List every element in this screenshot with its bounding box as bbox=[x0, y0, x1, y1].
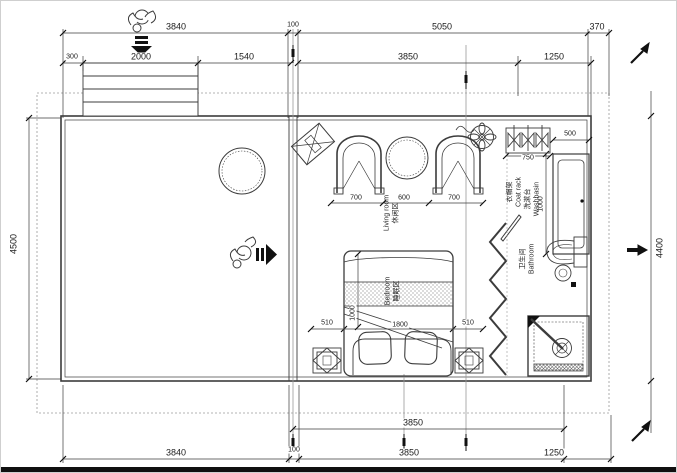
person-side-icon bbox=[230, 237, 255, 268]
dim-top2-1250: 1250 bbox=[543, 53, 565, 62]
dim-left-4500: 4500 bbox=[10, 233, 19, 255]
dim-top2-300: 300 bbox=[65, 54, 79, 61]
dim-washbasin-500: 500 bbox=[563, 131, 577, 138]
pillow-left bbox=[358, 331, 391, 364]
grid-lines bbox=[292, 29, 468, 451]
pen-marker-top-icon bbox=[631, 43, 649, 63]
bedroom-label: Bedroom 睡眠区 bbox=[385, 277, 402, 305]
washbasin-label: 洗漱台 Washbasin bbox=[525, 182, 542, 216]
dim-bottom2-1250: 1250 bbox=[543, 449, 565, 458]
dim-chair-700-left: 700 bbox=[349, 195, 363, 202]
privacy-screen bbox=[490, 223, 506, 375]
dim-top-370: 370 bbox=[588, 23, 605, 32]
coat-rack-label: 衣帽架 Coat rack bbox=[507, 177, 524, 207]
bathroom-label: 卫生间 Bathroom bbox=[520, 244, 537, 274]
bedroom-label-en: Bedroom bbox=[385, 277, 394, 305]
dim-top2-1540: 1540 bbox=[233, 53, 255, 62]
dim-bottom2-3840: 3840 bbox=[165, 449, 187, 458]
living-room-label-en: Living room bbox=[384, 195, 393, 231]
bedroom-label-zh: 睡眠区 bbox=[393, 277, 402, 305]
armchair-left bbox=[334, 136, 384, 194]
dim-bed-510-left: 510 bbox=[320, 320, 334, 327]
person-top-icon bbox=[128, 10, 155, 32]
dim-bottom2-3850: 3850 bbox=[398, 449, 420, 458]
dim-right-4400: 4400 bbox=[656, 237, 665, 259]
coat-rack bbox=[506, 125, 550, 153]
coat-rack-label-zh: 衣帽架 bbox=[507, 177, 516, 207]
dim-chair-700-right: 700 bbox=[447, 195, 461, 202]
nightstand-left bbox=[313, 348, 341, 373]
dim-bed-1000: 1000 bbox=[350, 304, 357, 322]
dim-bottom1-3850: 3850 bbox=[402, 419, 424, 428]
entry-arrow-right-icon bbox=[256, 244, 277, 265]
coat-rack-label-en: Coat rack bbox=[515, 177, 524, 207]
dim-top-5050: 5050 bbox=[431, 23, 453, 32]
dim-top-100: 100 bbox=[286, 22, 300, 29]
floor-plan-drawing bbox=[1, 1, 677, 473]
entry-steps bbox=[83, 63, 198, 116]
washbasin bbox=[553, 154, 589, 254]
bed bbox=[344, 251, 453, 376]
dim-bed-1800: 1800 bbox=[391, 322, 409, 329]
floor-plan-page: 3840 100 5050 370 300 2000 1540 3850 125… bbox=[0, 0, 677, 473]
dim-bed-510-right: 510 bbox=[461, 320, 475, 327]
bathroom-door bbox=[501, 215, 521, 241]
nightstand-right bbox=[455, 348, 483, 373]
pen-marker-right-icon bbox=[627, 245, 647, 255]
section-markers bbox=[292, 45, 468, 451]
bathroom-label-en: Bathroom bbox=[528, 244, 537, 274]
round-table bbox=[386, 137, 428, 179]
pen-marker-bottom-icon bbox=[632, 421, 650, 441]
dim-top2-2000: 2000 bbox=[130, 53, 152, 62]
living-room-label-zh: 休闲区 bbox=[392, 195, 401, 231]
dim-bottom2-100: 100 bbox=[287, 447, 301, 454]
washbasin-label-zh: 洗漱台 bbox=[525, 182, 534, 216]
page-bottom-rule bbox=[1, 467, 677, 473]
living-room-label: Living room 休闲区 bbox=[384, 195, 401, 231]
dim-coat-rack-750: 750 bbox=[521, 155, 535, 162]
washbasin-label-en: Washbasin bbox=[533, 182, 542, 216]
round-table-left-room bbox=[219, 148, 265, 194]
hanger-icons bbox=[508, 125, 548, 151]
shower bbox=[528, 316, 589, 376]
dim-top-3840: 3840 bbox=[165, 23, 187, 32]
bathroom-label-zh: 卫生间 bbox=[520, 244, 529, 274]
rotated-side-table bbox=[291, 123, 334, 165]
armchair-right bbox=[433, 136, 483, 194]
dim-top2-3850: 3850 bbox=[397, 53, 419, 62]
